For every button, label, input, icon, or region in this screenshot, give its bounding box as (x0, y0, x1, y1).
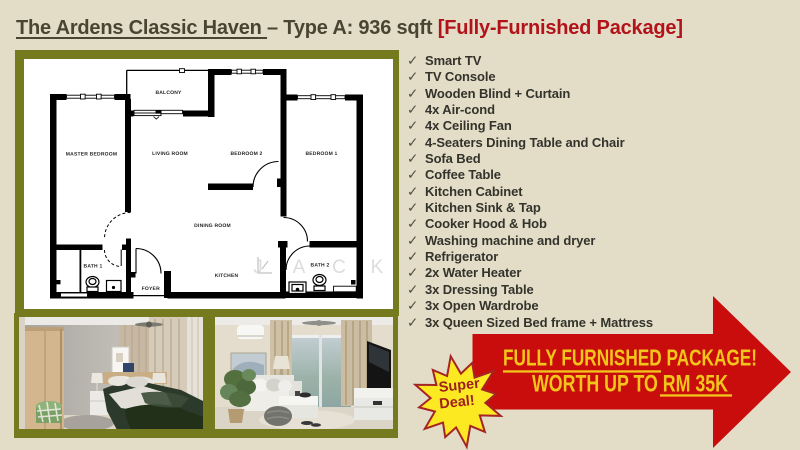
svg-text:BALCONY: BALCONY (155, 90, 182, 96)
svg-text:BEDROOM 1: BEDROOM 1 (305, 151, 337, 157)
svg-text:BEDROOM 2: BEDROOM 2 (230, 151, 262, 157)
svg-text:C: C (332, 257, 346, 278)
svg-text:DINING ROOM: DINING ROOM (194, 223, 231, 229)
svg-text:K: K (371, 257, 384, 278)
svg-text:MASTER BEDROOM: MASTER BEDROOM (66, 152, 117, 158)
svg-text:BATH 1: BATH 1 (84, 264, 103, 270)
svg-text:FOYER: FOYER (142, 286, 160, 292)
svg-text:A: A (293, 257, 306, 278)
svg-text:BATH 2: BATH 2 (311, 263, 330, 269)
svg-text:WORTH UP TO RM 35K: WORTH UP TO RM 35K (532, 371, 728, 398)
svg-text:LIVING ROOM: LIVING ROOM (152, 151, 188, 157)
svg-text:KITCHEN: KITCHEN (215, 273, 239, 279)
svg-text:J: J (253, 257, 263, 278)
svg-text:FULLY FURNISHED PACKAGE!: FULLY FURNISHED PACKAGE! (503, 345, 757, 371)
